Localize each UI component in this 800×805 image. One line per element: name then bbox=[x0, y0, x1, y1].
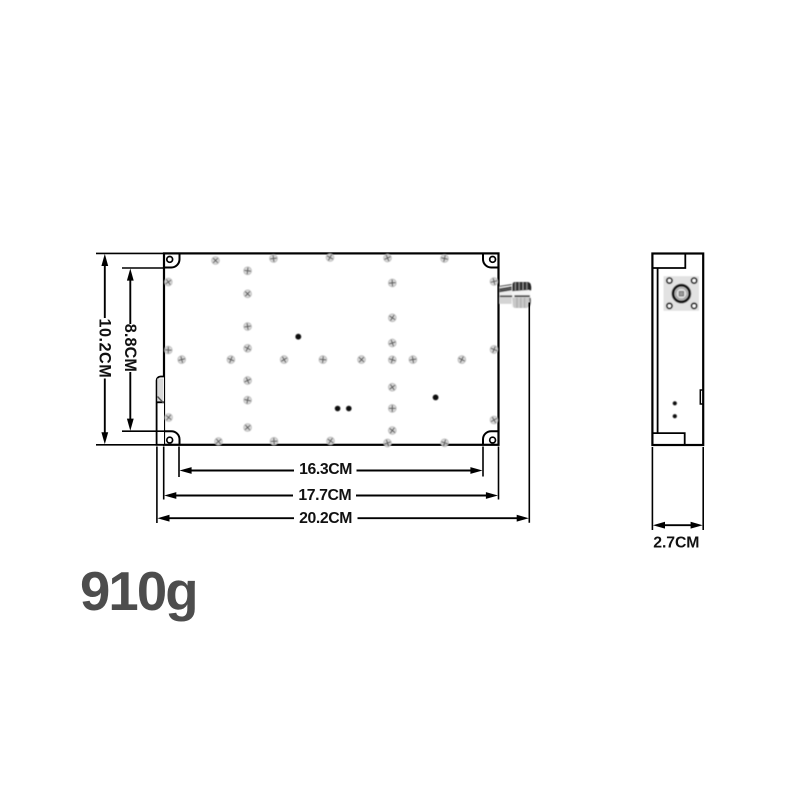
svg-text:910g: 910g bbox=[80, 561, 197, 622]
svg-text:20.2CM: 20.2CM bbox=[299, 510, 352, 527]
svg-text:16.3CM: 16.3CM bbox=[299, 461, 352, 478]
svg-text:2.7CM: 2.7CM bbox=[653, 535, 699, 552]
svg-text:17.7CM: 17.7CM bbox=[298, 487, 351, 504]
svg-text:8.8CM: 8.8CM bbox=[121, 324, 139, 372]
svg-text:10.2CM: 10.2CM bbox=[95, 319, 113, 379]
